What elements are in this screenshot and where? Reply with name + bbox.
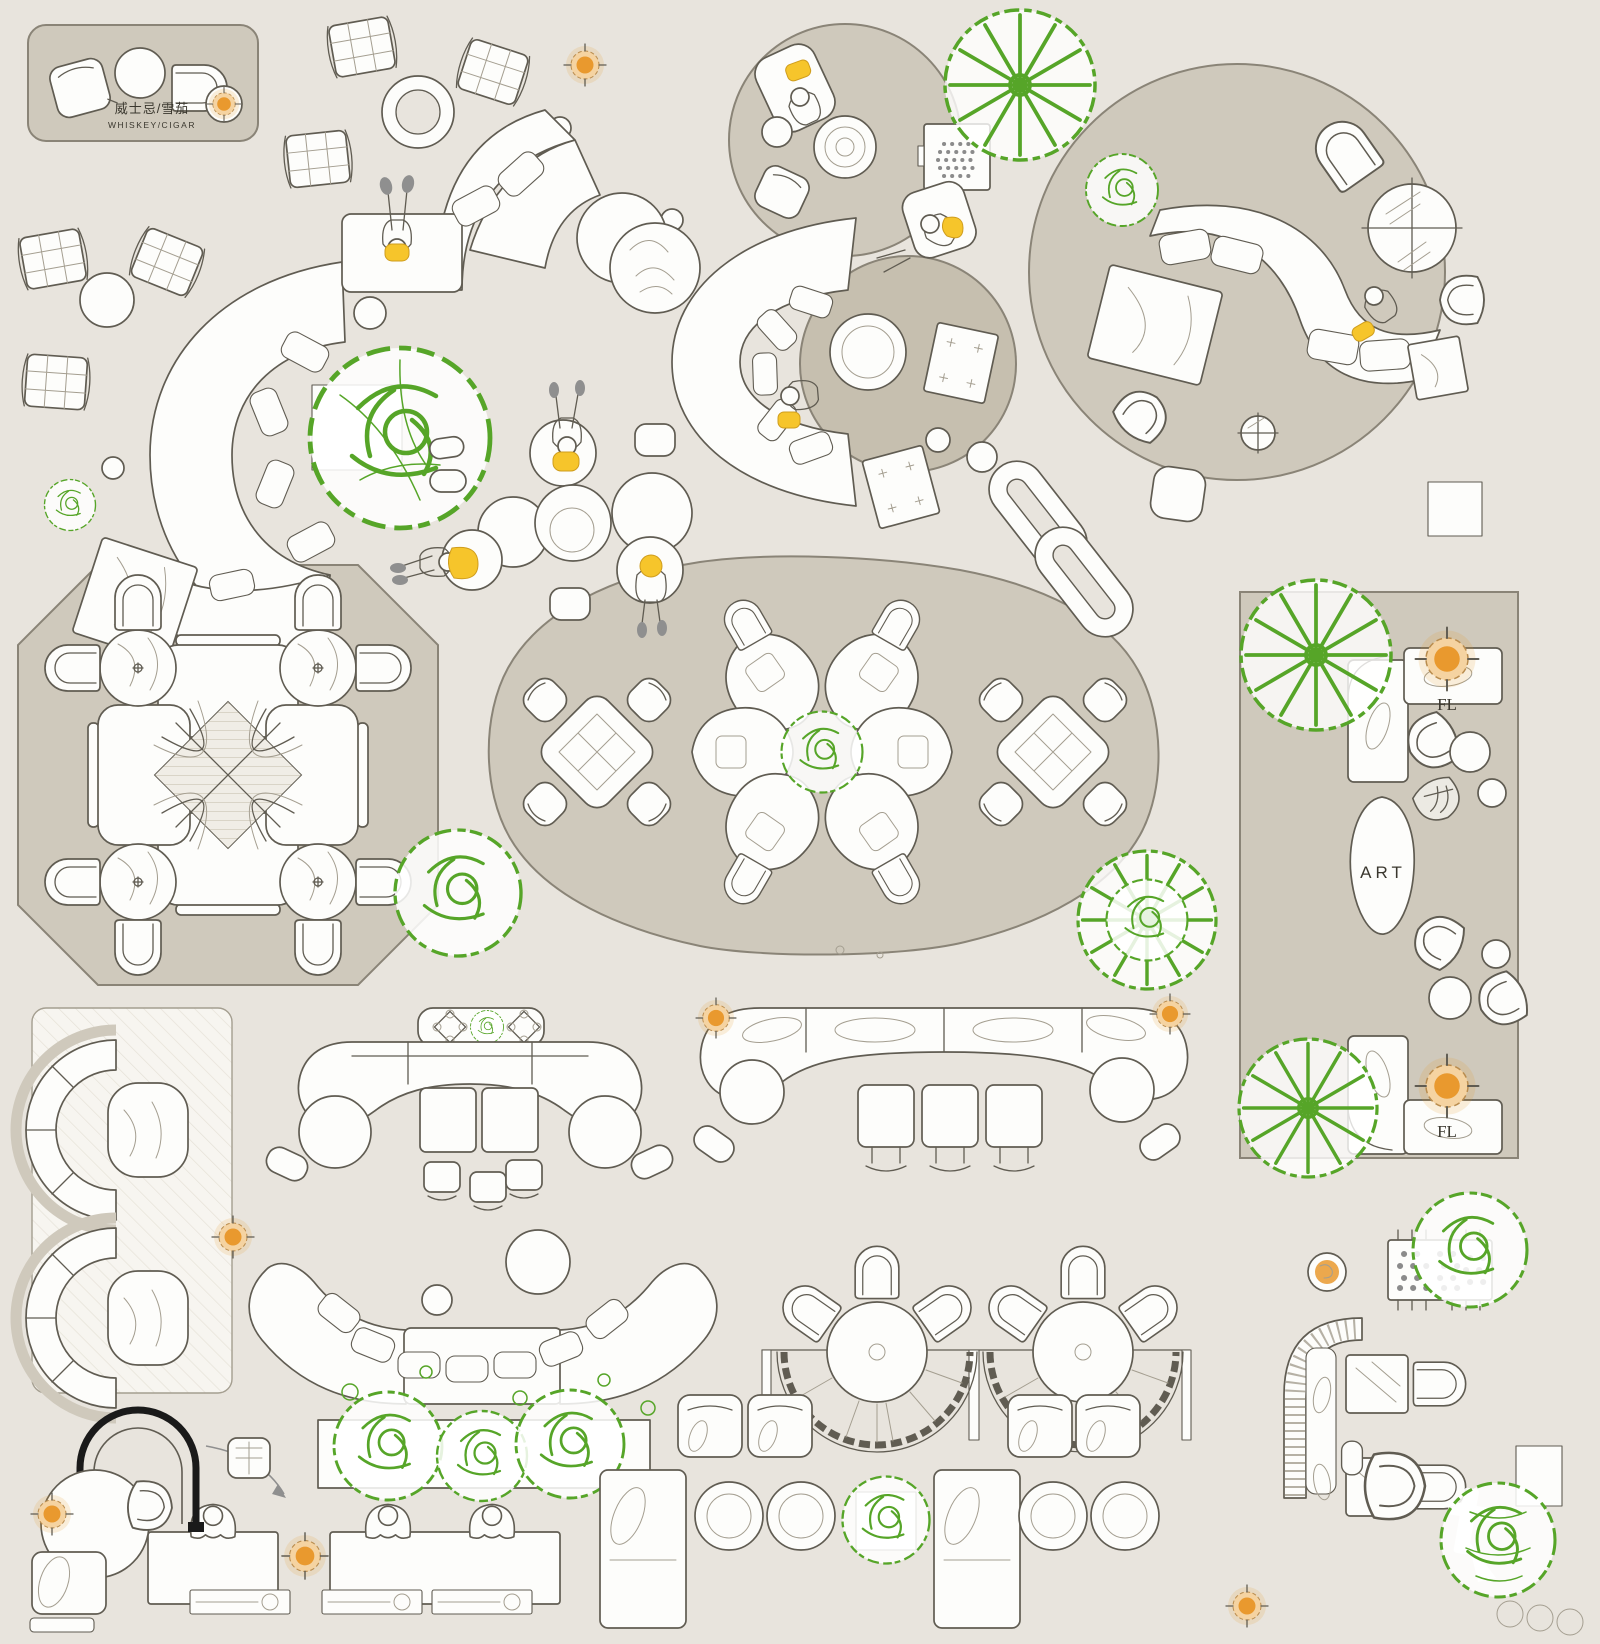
u-sofa-right-wing xyxy=(560,1264,717,1404)
laptop xyxy=(385,244,409,261)
lounger-with-leaf-pillow xyxy=(600,1470,686,1628)
coffee-table xyxy=(506,1230,570,1294)
chair xyxy=(855,1246,899,1298)
chair xyxy=(1061,1246,1105,1298)
round-side-table xyxy=(1091,1482,1159,1550)
round-table xyxy=(299,1096,371,1168)
side-table xyxy=(422,1285,452,1315)
dining-armchair xyxy=(295,575,341,630)
square-table xyxy=(1346,1355,1408,1413)
pod-chair xyxy=(1440,276,1484,325)
fl-label-top: FL xyxy=(1437,695,1457,714)
quilted-ottoman xyxy=(15,228,91,291)
small-stool xyxy=(762,117,792,147)
plant-icon xyxy=(1086,154,1158,226)
spiky-shrub xyxy=(1078,851,1216,989)
small-stool xyxy=(926,428,950,452)
dining-table xyxy=(100,630,176,706)
round-stool xyxy=(720,1060,784,1124)
square-stools xyxy=(858,1085,1042,1171)
mini-ottoman xyxy=(550,588,590,620)
round-table xyxy=(1450,732,1490,772)
tree-icon xyxy=(1241,580,1391,730)
lounge-chair-with-pillow xyxy=(30,1552,106,1632)
plant-box xyxy=(1428,482,1482,536)
quilted-ottoman xyxy=(126,225,208,298)
mini-ottoman xyxy=(635,424,675,456)
small-stool xyxy=(967,442,997,472)
quilted-ottoman xyxy=(453,37,533,107)
drawer-consoles xyxy=(190,1590,532,1614)
dining-armchair xyxy=(45,859,100,905)
small-stool xyxy=(354,297,386,329)
dining-armchair xyxy=(356,645,411,691)
lounge-pod-chair xyxy=(1365,1453,1425,1519)
person-at-desk xyxy=(470,1504,515,1538)
donut-table-hole xyxy=(396,90,440,134)
art-label: ART xyxy=(1360,863,1406,882)
round-table xyxy=(569,1096,641,1168)
quilted-ottoman xyxy=(282,130,355,189)
quilted-ottoman xyxy=(324,16,400,79)
floor-lamp-icon xyxy=(564,44,606,86)
small-stool xyxy=(1482,940,1510,968)
large-circle-rug xyxy=(1029,64,1445,480)
plant-ball-icon xyxy=(843,1477,930,1564)
shrub-icon xyxy=(1413,1193,1527,1307)
ball-chair xyxy=(577,193,700,313)
dining-armchair xyxy=(115,575,161,630)
marble-end-table-small xyxy=(1408,336,1469,400)
pebble-pouf xyxy=(535,485,611,561)
zone-bar-right xyxy=(689,994,1190,1171)
dining-table xyxy=(280,630,356,706)
round-side-table xyxy=(1019,1482,1087,1550)
yellow-hair xyxy=(640,555,662,577)
stool xyxy=(689,1121,738,1166)
laptop xyxy=(942,217,963,238)
cushion xyxy=(448,547,478,578)
desk-lamp-icon xyxy=(282,1533,328,1579)
coffee-table xyxy=(814,116,876,178)
floor-plan-drawing: 威士忌/雪茄 WHISKEY/CIGAR xyxy=(0,0,1600,1644)
center-plant-icon xyxy=(782,712,863,793)
square-table xyxy=(420,1088,476,1152)
tub-chair xyxy=(126,1480,174,1532)
whiskey-label-cn: 威士忌/雪茄 xyxy=(115,101,190,116)
round-stool xyxy=(1090,1058,1154,1122)
bench-post xyxy=(1182,1350,1191,1440)
lounger-with-leaf-pillow xyxy=(934,1470,1020,1628)
fern-plant-icon xyxy=(1441,1483,1555,1597)
stool xyxy=(1135,1119,1184,1164)
quilted-chairs-row xyxy=(678,1395,1140,1457)
dining-armchair xyxy=(295,920,341,975)
square-table xyxy=(482,1088,538,1152)
round-side-table xyxy=(767,1482,835,1550)
small-stool xyxy=(102,457,124,479)
whiskey-label-en: WHISKEY/CIGAR xyxy=(108,120,196,130)
dining-armchair xyxy=(115,920,161,975)
stools-under-tables xyxy=(424,1160,542,1210)
fl-label-bottom: FL xyxy=(1437,1122,1457,1141)
cushion xyxy=(553,452,579,471)
back-shelf xyxy=(418,1008,544,1046)
quilted-ottoman xyxy=(21,354,92,411)
person-at-desk xyxy=(366,1504,411,1538)
dining-armchair xyxy=(45,645,100,691)
zone-bar-left xyxy=(262,1008,676,1210)
laptop xyxy=(778,412,800,428)
round-table xyxy=(115,48,165,98)
plant-icon xyxy=(45,480,96,531)
floor-plan-canvas: 威士忌/雪茄 WHISKEY/CIGAR xyxy=(0,0,1600,1644)
pouf xyxy=(1149,465,1208,524)
tree-icon xyxy=(945,10,1095,160)
tree-icon xyxy=(1239,1039,1377,1177)
u-sofa-left-wing xyxy=(249,1264,406,1404)
dining-table xyxy=(280,844,356,920)
mini-ottoman xyxy=(430,470,466,492)
round-table xyxy=(1429,977,1471,1019)
cocktail-tray xyxy=(1308,1253,1346,1291)
chair xyxy=(1413,1362,1465,1406)
stool xyxy=(1342,1441,1363,1475)
floor-lamp-icon xyxy=(1226,1585,1268,1627)
spacer xyxy=(430,140,431,141)
dining-table xyxy=(100,844,176,920)
round-stool xyxy=(80,273,134,327)
stool-circles xyxy=(1497,1601,1583,1635)
small-stool xyxy=(1478,779,1506,807)
shrub-icon xyxy=(395,830,521,956)
round-side-table xyxy=(695,1482,763,1550)
zone-desk-row xyxy=(148,1504,560,1614)
speaker-cabinet xyxy=(923,322,998,403)
coffee-table xyxy=(830,314,906,390)
zone-u-sofa xyxy=(212,1216,717,1501)
